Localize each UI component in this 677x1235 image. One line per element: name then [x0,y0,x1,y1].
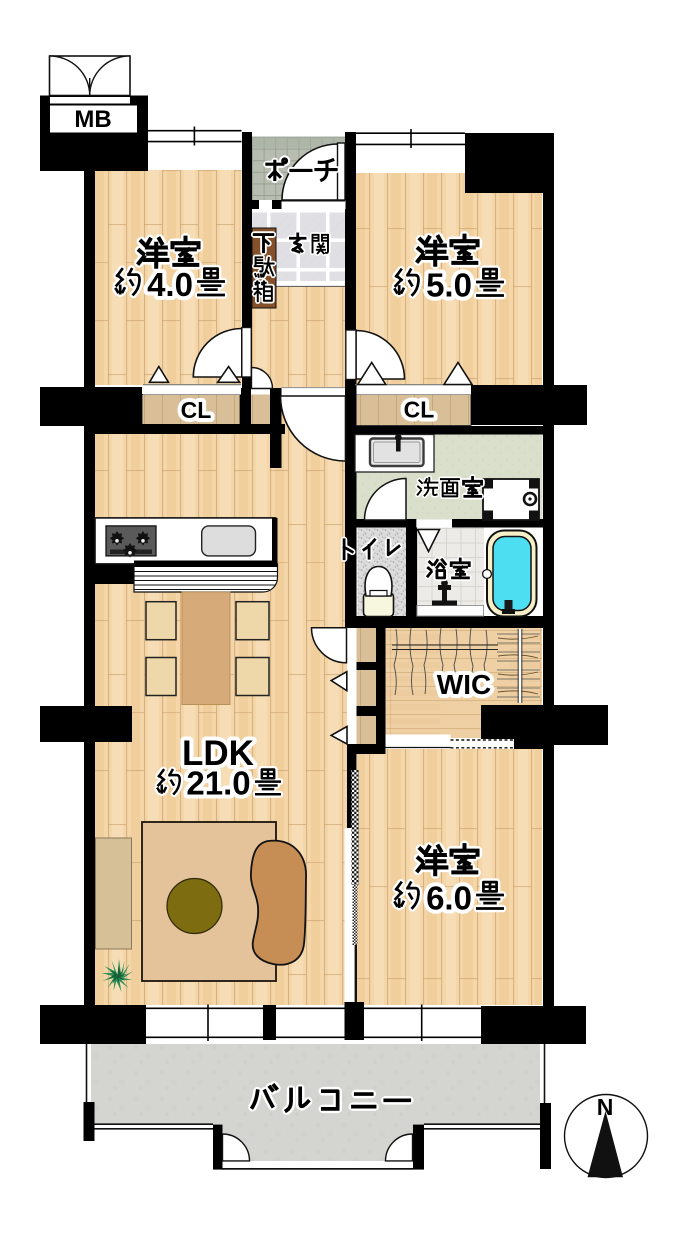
svg-text:WIC: WIC [437,669,491,700]
svg-text:N: N [597,1094,614,1120]
svg-text:5.0: 5.0 [426,267,472,304]
svg-text:CL: CL [181,397,212,423]
svg-text:6.0: 6.0 [426,880,472,917]
svg-text:4.0: 4.0 [147,266,193,303]
svg-text:MB: MB [74,106,111,133]
svg-text:CL: CL [404,397,435,423]
svg-text:21.0: 21.0 [186,765,250,802]
